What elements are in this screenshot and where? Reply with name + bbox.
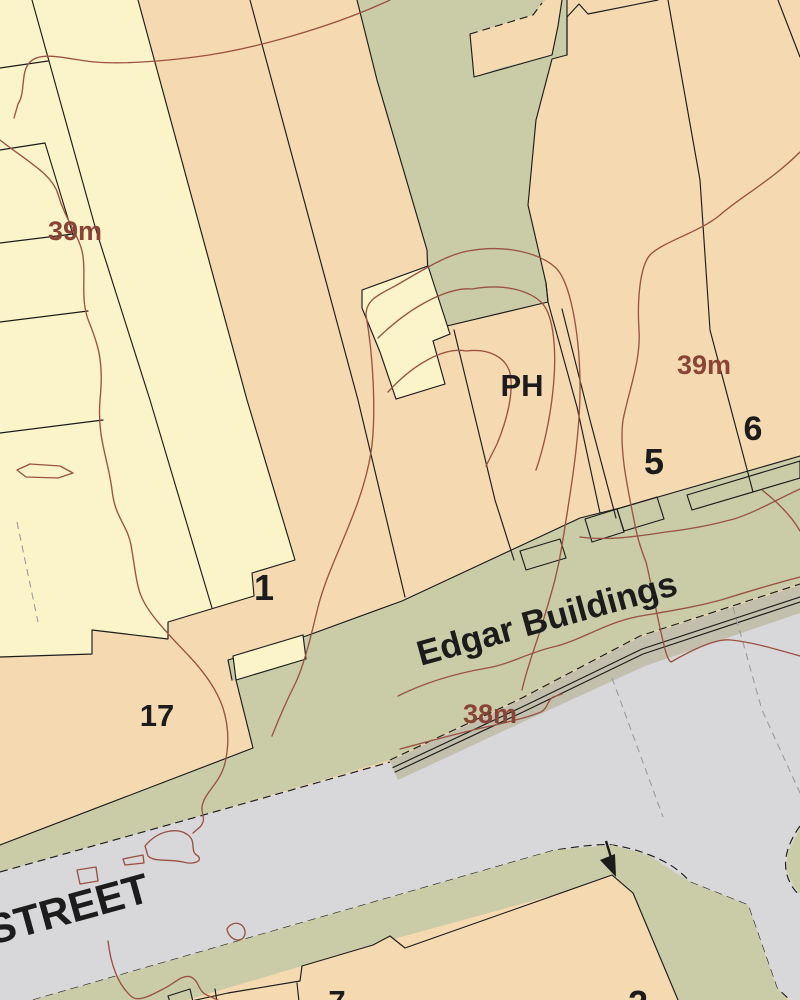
spot-height-right-label: 39m: [677, 350, 731, 380]
building-no-6-label: 6: [744, 410, 763, 448]
spot-height-left-label: 39m: [48, 216, 102, 246]
building-no-2-partial-label: 2: [628, 983, 648, 1000]
os-map-view[interactable]: 39m 39m 38m PH 1 5 6 17 7 2 Edgar Buildi…: [0, 0, 800, 1000]
building-no-7-label: 7: [328, 984, 345, 1000]
building-no-1-label: 1: [254, 567, 274, 608]
pub-label: PH: [500, 368, 543, 403]
building-no-17-label: 17: [140, 698, 174, 733]
building-no-5-label: 5: [644, 441, 664, 482]
map-canvas: 39m 39m 38m PH 1 5 6 17 7 2 Edgar Buildi…: [0, 0, 800, 1000]
spot-height-street-label: 38m: [463, 699, 517, 729]
